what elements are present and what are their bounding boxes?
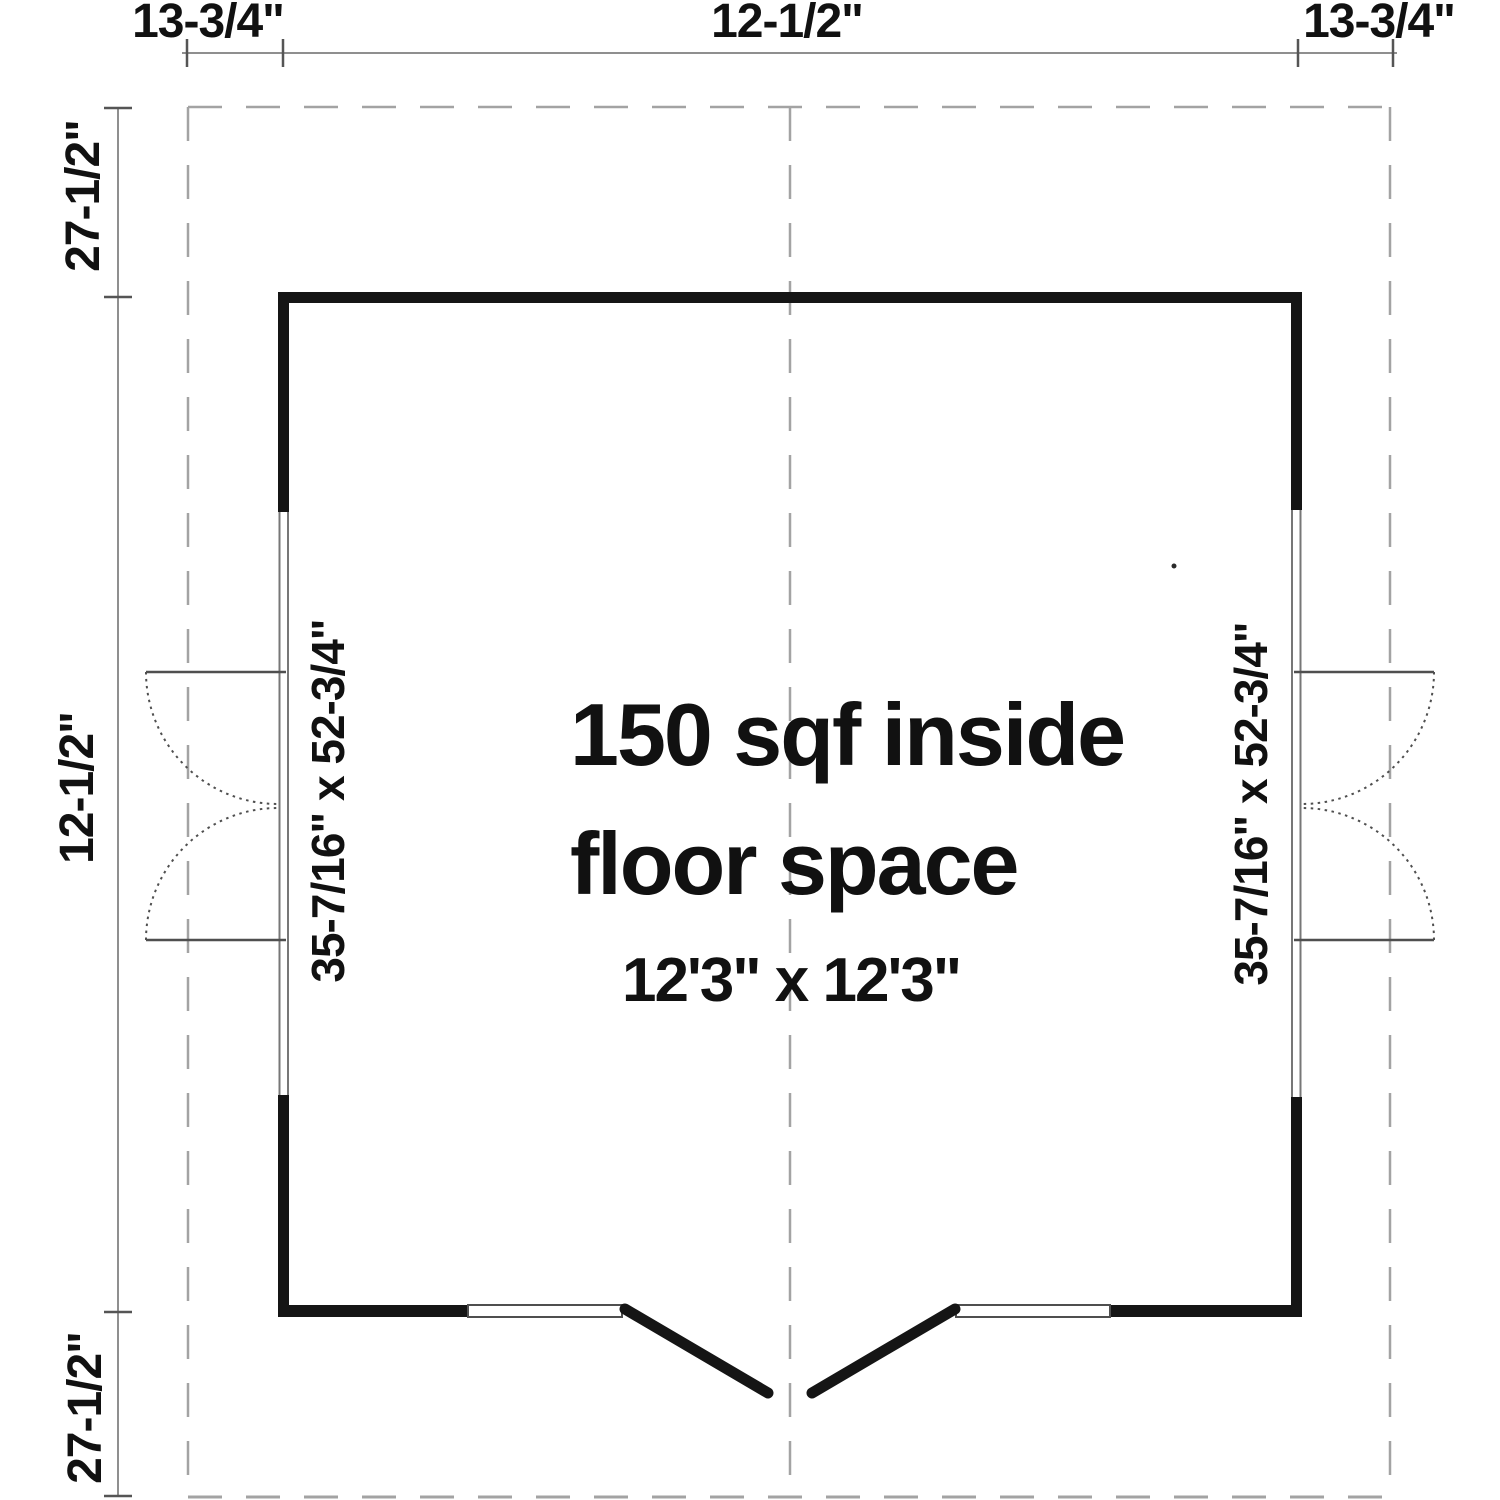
top-dim-label-center: 12-1/2" (711, 0, 863, 46)
left-door-size-label: 35-7/16" x 52-3/4" (305, 619, 351, 982)
floor-size-text: 12'3" x 12'3" (622, 950, 960, 1012)
right-double-door (1292, 510, 1434, 1097)
left-dim-label-middle: 12-1/2" (54, 712, 102, 864)
print-artifact-dot (1172, 564, 1177, 569)
bottom-door-leaf-left (625, 1309, 768, 1393)
bottom-window-right (956, 1305, 1110, 1317)
bottom-door-leaf-right (812, 1309, 955, 1393)
floor-area-text-line1: 150 sqf inside (570, 691, 1124, 779)
left-door-swing-arc-top (146, 672, 278, 804)
bottom-window-left (468, 1305, 622, 1317)
top-dim-label-right: 13-3/4" (1303, 0, 1455, 46)
left-double-door (146, 512, 288, 1095)
floor-area-text-line2: floor space (570, 820, 1017, 908)
left-dim-label-bottom: 27-1/2" (62, 1332, 110, 1484)
floor-plan-canvas: 13-3/4" 12-1/2" 13-3/4" 27-1/2" 12-1/2" … (0, 0, 1500, 1500)
right-door-size-label: 35-7/16" x 52-3/4" (1228, 622, 1274, 985)
top-dim-label-left: 13-3/4" (132, 0, 284, 46)
left-door-swing-arc-bottom (146, 808, 278, 940)
right-door-swing-arc-top (1302, 672, 1434, 804)
left-dim-label-top: 27-1/2" (60, 120, 108, 272)
left-dimension-line (104, 108, 132, 1496)
overhang-guide-rectangle (188, 107, 1390, 1497)
right-door-swing-arc-bottom (1302, 808, 1434, 940)
